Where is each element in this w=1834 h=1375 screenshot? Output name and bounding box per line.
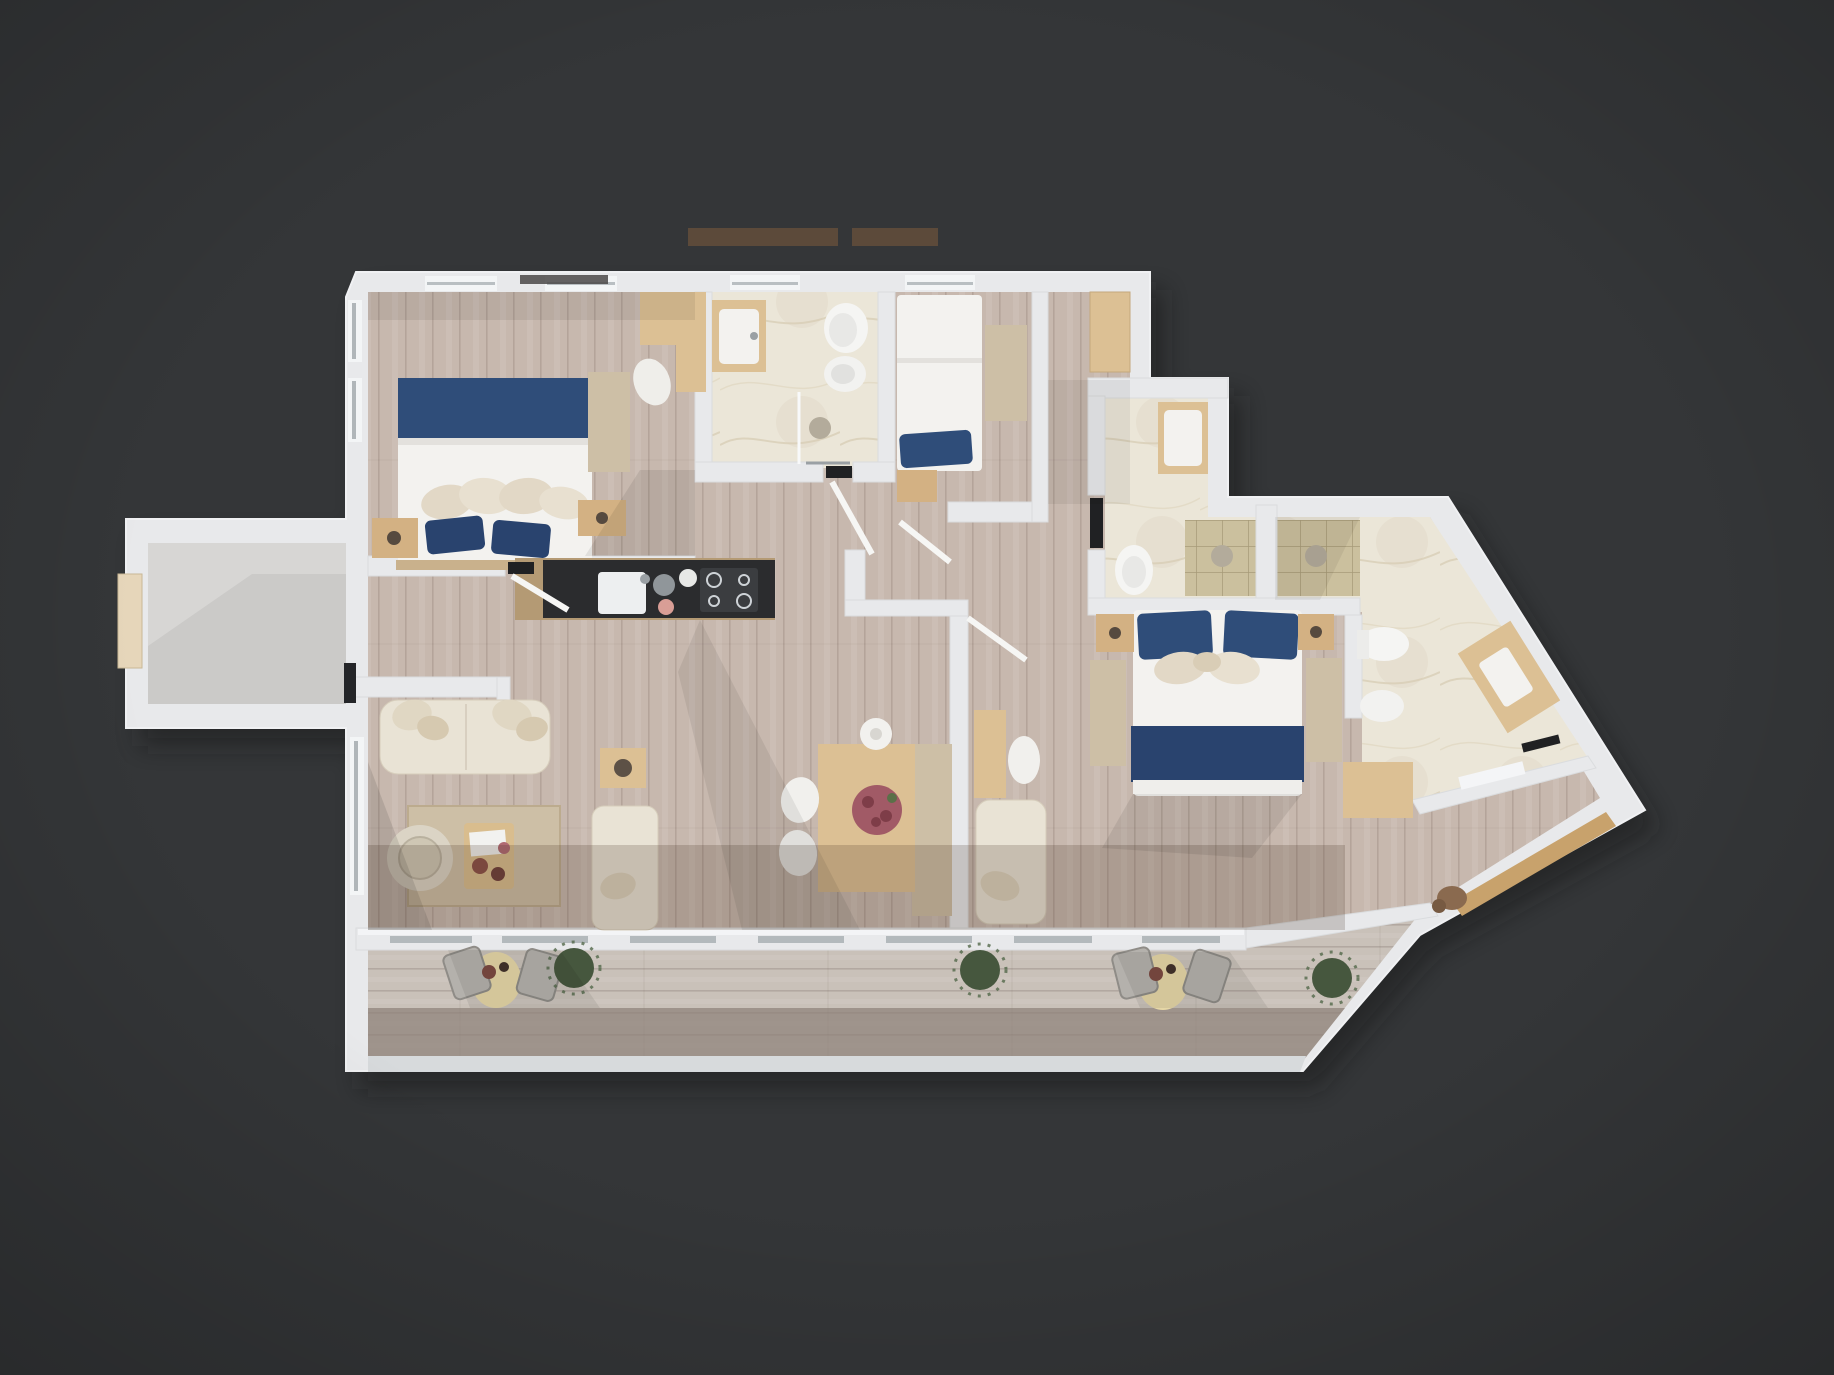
floor-plan-stage	[0, 0, 1834, 1375]
floor-plan-render	[0, 0, 1834, 1375]
background-vignette	[0, 0, 1834, 1375]
